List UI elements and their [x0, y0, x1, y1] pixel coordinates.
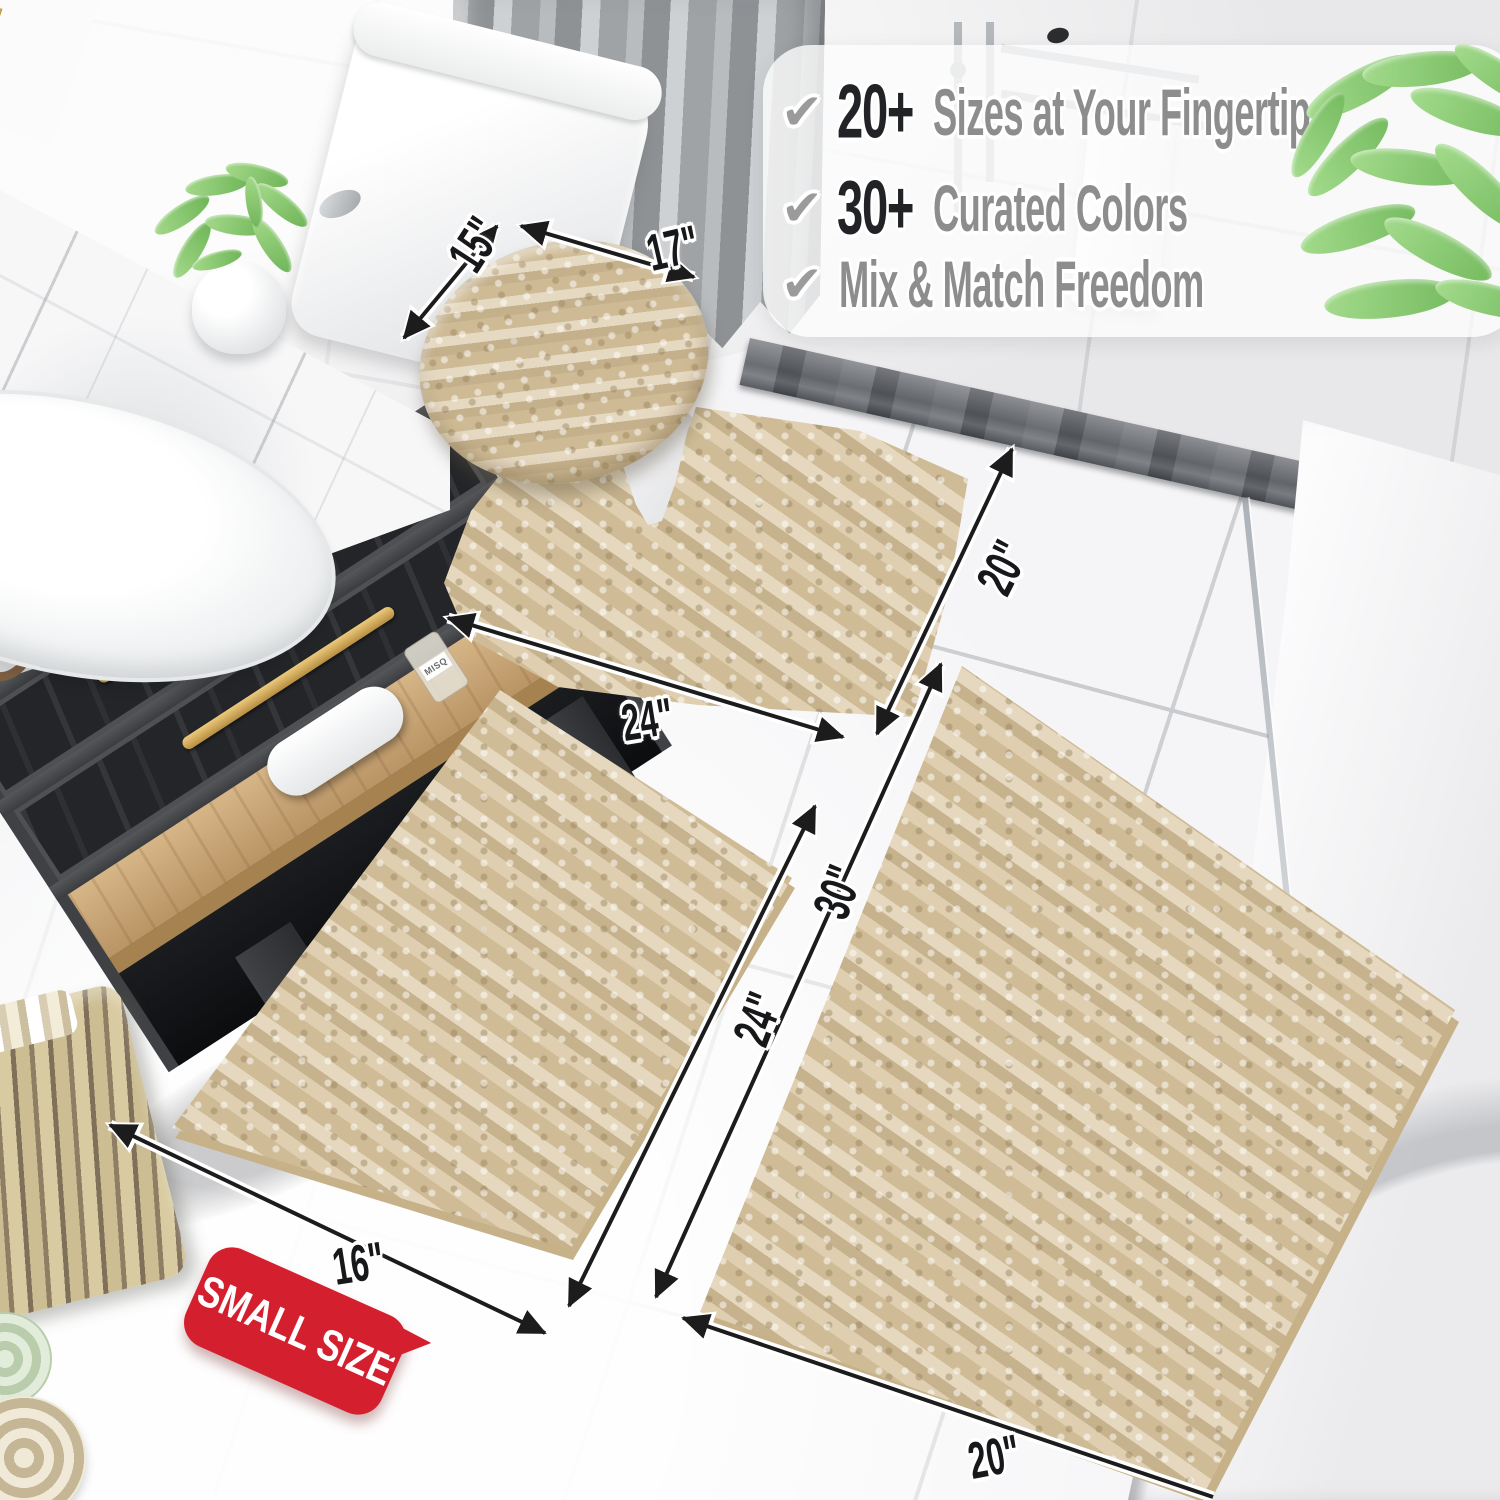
arrow-30-rug — [656, 664, 941, 1297]
arrow-20-contour — [877, 449, 1012, 734]
arrow-20-rug — [683, 1318, 1213, 1497]
arrow-24-rug — [569, 806, 815, 1306]
bathroom-scene: MISQ — [0, 0, 1500, 1500]
